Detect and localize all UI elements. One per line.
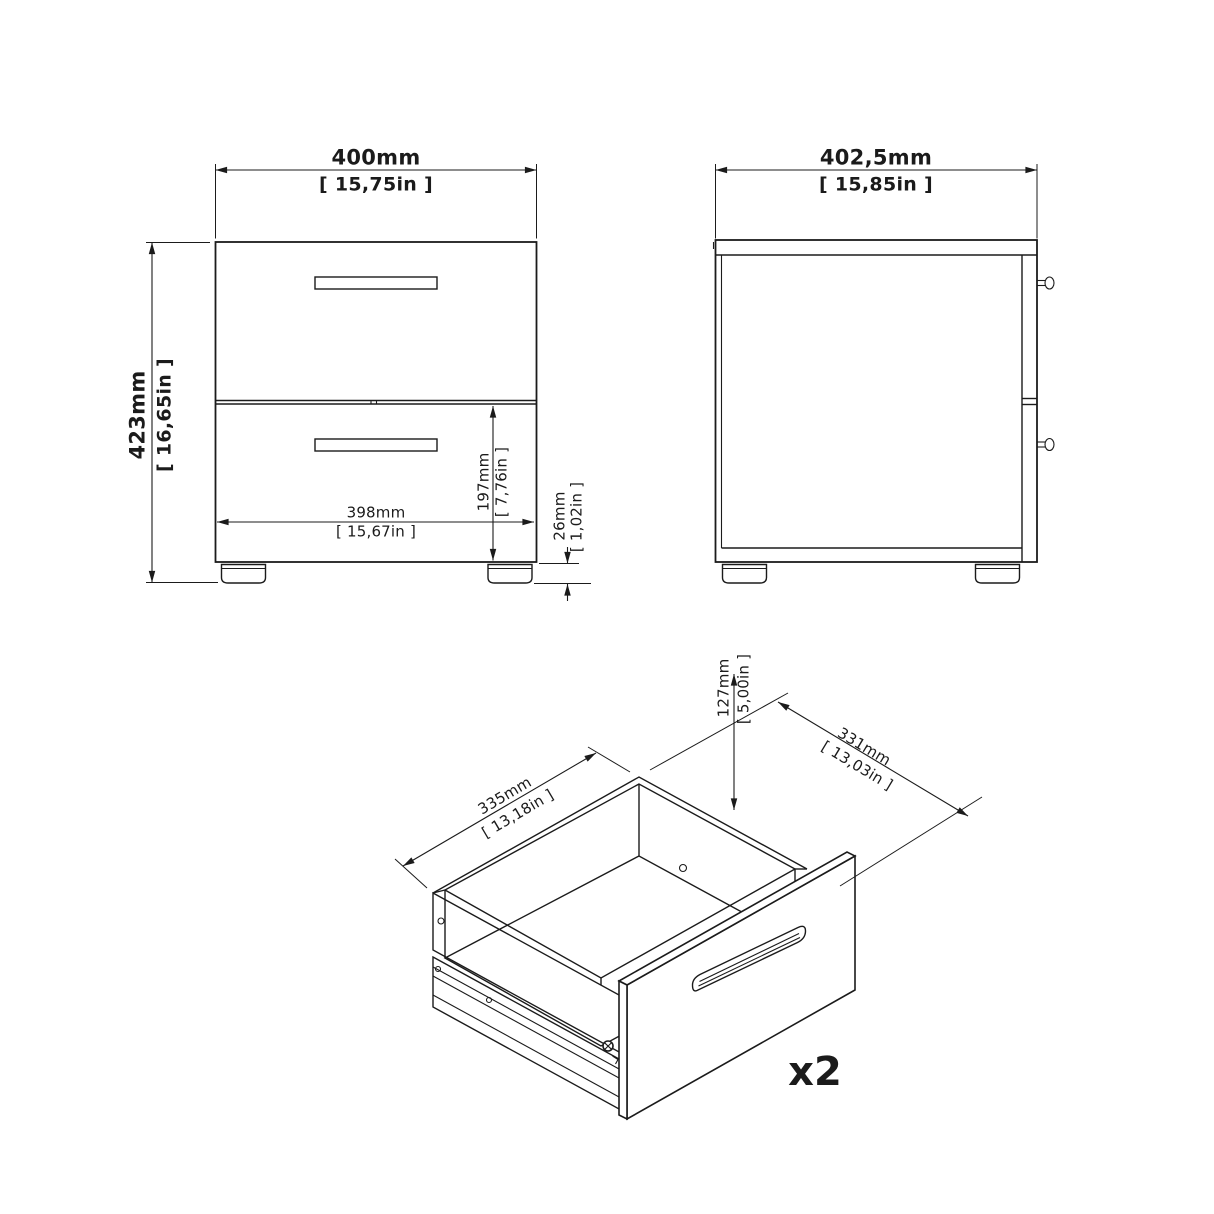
rail-screw [603,1041,618,1064]
side-upper-knob [1037,277,1054,289]
drawer-height-in-label: [ 5,00in ] [737,654,752,724]
drawer-width-dimension [650,693,982,886]
side-depth-mm-label: 402,5mm [820,148,932,169]
front-drawer-height-mm-label: 197mm [477,453,492,512]
side-lower-knob [1037,439,1054,451]
drawer-quantity-label: x2 [788,1052,842,1092]
front-foot-height-mm-label: 26mm [553,491,568,540]
side-view-drawing [714,164,1055,583]
front-lower-drawer-handle [315,439,437,451]
blueprint-page: 400mm [ 15,75in ] 423mm [ 16,65in ] 398m… [0,0,1214,1214]
front-inner-width-in-label: [ 15,67in ] [336,525,416,540]
drawer-height-mm-label: 127mm [717,659,732,718]
drawer-isometric-drawing [395,674,982,1119]
front-left-foot [222,565,266,584]
front-inner-width-mm-label: 398mm [347,506,406,521]
front-drawer-height-in-label: [ 7,76in ] [495,447,510,517]
front-foot-height-dimension [534,547,591,601]
front-height-in-label: [ 16,65in ] [156,358,175,472]
side-depth-in-label: [ 15,85in ] [819,176,933,195]
front-width-in-label: [ 15,75in ] [319,176,433,195]
technical-drawing [0,0,1214,1214]
side-left-foot [723,565,767,584]
front-right-foot [488,565,532,584]
front-upper-drawer-handle [315,277,437,289]
front-height-mm-label: 423mm [128,370,149,459]
front-width-mm-label: 400mm [331,148,420,169]
side-right-foot [976,565,1020,584]
front-foot-height-in-label: [ 1,02in ] [570,482,585,552]
